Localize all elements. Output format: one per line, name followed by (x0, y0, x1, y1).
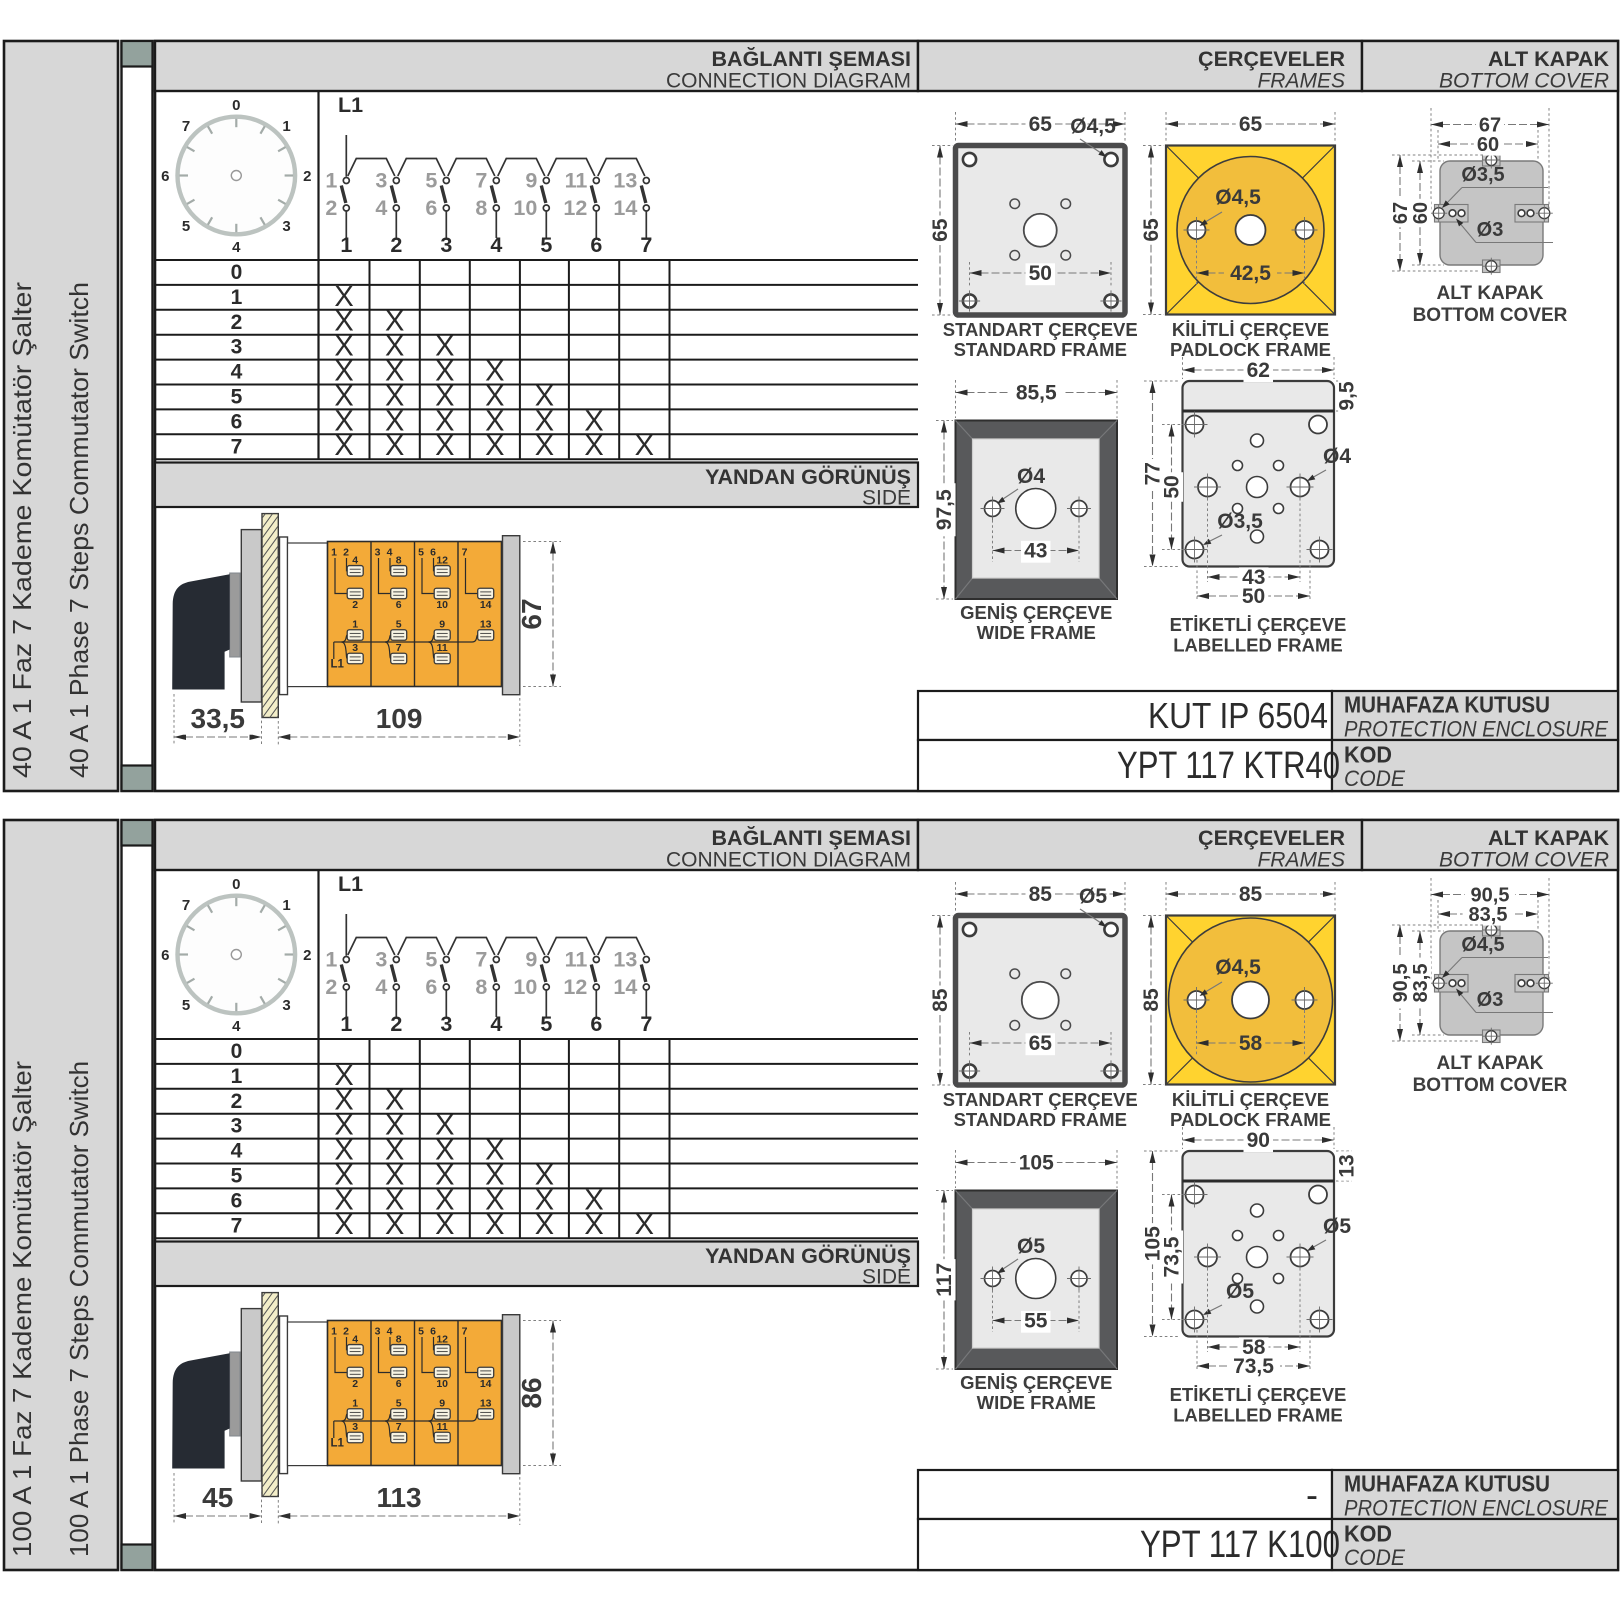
svg-text:9: 9 (525, 948, 537, 972)
svg-text:13: 13 (613, 169, 637, 193)
svg-text:2: 2 (352, 1378, 358, 1390)
svg-text:12: 12 (436, 1334, 448, 1346)
svg-text:STANDART ÇERÇEVE: STANDART ÇERÇEVE (943, 319, 1138, 340)
svg-text:1: 1 (352, 1398, 358, 1410)
svg-text:2: 2 (343, 1326, 349, 1338)
svg-text:50: 50 (1242, 585, 1265, 608)
svg-text:X: X (635, 1209, 654, 1241)
svg-text:KOD: KOD (1344, 742, 1392, 768)
svg-text:85: 85 (1140, 988, 1163, 1012)
svg-text:3: 3 (375, 948, 387, 972)
svg-text:SIDE: SIDE (862, 1266, 911, 1289)
svg-text:BAĞLANTI ŞEMASI: BAĞLANTI ŞEMASI (712, 46, 911, 71)
svg-text:4: 4 (232, 1018, 241, 1035)
svg-text:9: 9 (439, 1398, 445, 1410)
svg-text:ÇERÇEVELER: ÇERÇEVELER (1198, 47, 1345, 71)
svg-text:60: 60 (1410, 202, 1432, 224)
svg-text:X: X (334, 430, 353, 462)
svg-text:X: X (635, 430, 654, 462)
svg-text:6: 6 (425, 196, 437, 220)
svg-text:65: 65 (929, 218, 952, 242)
svg-text:9,5: 9,5 (1336, 381, 1359, 411)
svg-text:PROTECTION ENCLOSURE: PROTECTION ENCLOSURE (1344, 717, 1608, 742)
svg-text:ETİKETLİ ÇERÇEVE: ETİKETLİ ÇERÇEVE (1170, 614, 1347, 635)
svg-text:11: 11 (437, 1421, 448, 1433)
svg-text:7: 7 (231, 435, 243, 458)
svg-text:11: 11 (565, 169, 588, 193)
svg-text:X: X (485, 430, 504, 462)
svg-text:Ø5: Ø5 (1079, 885, 1107, 908)
svg-text:3: 3 (375, 547, 381, 559)
svg-text:0: 0 (232, 876, 240, 893)
svg-text:3: 3 (282, 218, 290, 235)
svg-text:YANDAN GÖRÜNÜŞ: YANDAN GÖRÜNÜŞ (705, 1243, 911, 1268)
svg-text:3: 3 (282, 997, 290, 1014)
svg-text:40 A 1 Faz 7 Kademe Komütatör: 40 A 1 Faz 7 Kademe Komütatör Şalter (7, 282, 37, 778)
svg-text:CODE: CODE (1344, 1545, 1405, 1570)
svg-text:PROTECTION ENCLOSURE: PROTECTION ENCLOSURE (1344, 1496, 1608, 1521)
svg-text:4: 4 (375, 196, 387, 220)
svg-text:8: 8 (396, 555, 402, 567)
svg-text:5: 5 (418, 1326, 424, 1338)
svg-text:6: 6 (396, 1378, 402, 1390)
svg-text:14: 14 (480, 1378, 492, 1390)
svg-text:2: 2 (303, 947, 311, 964)
svg-text:X: X (535, 1209, 554, 1241)
svg-text:65: 65 (1029, 113, 1053, 136)
svg-text:STANDART ÇERÇEVE: STANDART ÇERÇEVE (943, 1089, 1138, 1110)
svg-text:STANDARD FRAME: STANDARD FRAME (954, 339, 1127, 360)
svg-text:4: 4 (490, 233, 502, 257)
svg-text:58: 58 (1239, 1032, 1263, 1055)
svg-text:2: 2 (343, 547, 349, 559)
svg-text:6: 6 (590, 1012, 602, 1036)
svg-text:3: 3 (231, 336, 243, 359)
svg-text:Ø3: Ø3 (1477, 989, 1504, 1011)
svg-text:5: 5 (425, 948, 437, 972)
svg-text:8: 8 (475, 196, 487, 220)
svg-text:4: 4 (231, 1140, 243, 1163)
svg-text:7: 7 (396, 642, 402, 654)
svg-text:109: 109 (376, 703, 423, 734)
svg-text:14: 14 (613, 196, 637, 220)
svg-text:WIDE FRAME: WIDE FRAME (977, 1392, 1096, 1413)
svg-text:4: 4 (232, 239, 241, 256)
svg-text:67: 67 (516, 598, 547, 629)
svg-text:65: 65 (1029, 1032, 1053, 1055)
svg-text:Ø4,5: Ø4,5 (1070, 115, 1116, 138)
svg-text:X: X (584, 1209, 603, 1241)
svg-text:X: X (535, 430, 554, 462)
svg-text:85: 85 (1029, 883, 1053, 906)
svg-text:X: X (435, 1209, 454, 1241)
svg-text:4: 4 (387, 547, 393, 559)
svg-text:6: 6 (425, 975, 437, 999)
svg-text:SIDE: SIDE (862, 487, 911, 510)
svg-text:8: 8 (396, 1334, 402, 1346)
svg-text:60: 60 (1477, 134, 1499, 156)
svg-text:Ø3,5: Ø3,5 (1461, 164, 1504, 186)
svg-text:62: 62 (1247, 359, 1270, 382)
svg-text:4: 4 (231, 361, 243, 384)
svg-text:3: 3 (231, 1115, 243, 1138)
svg-text:PADLOCK FRAME: PADLOCK FRAME (1170, 339, 1331, 360)
svg-text:1: 1 (352, 619, 358, 631)
svg-text:7: 7 (182, 897, 190, 914)
svg-text:L1: L1 (338, 93, 363, 117)
svg-text:9: 9 (439, 619, 445, 631)
svg-text:YPT 117 K100: YPT 117 K100 (1140, 1524, 1340, 1566)
svg-text:5: 5 (396, 1398, 402, 1410)
svg-text:7: 7 (640, 1012, 652, 1036)
svg-text:YPT 117 KTR40: YPT 117 KTR40 (1117, 745, 1340, 787)
svg-text:13: 13 (480, 1398, 492, 1410)
svg-text:7: 7 (475, 169, 487, 193)
svg-text:8: 8 (475, 975, 487, 999)
svg-text:BOTTOM COVER: BOTTOM COVER (1439, 70, 1609, 93)
svg-text:1: 1 (340, 1012, 352, 1036)
svg-text:85: 85 (1239, 883, 1263, 906)
svg-text:45: 45 (202, 1482, 233, 1513)
svg-text:2: 2 (231, 1090, 243, 1113)
svg-text:14: 14 (480, 599, 492, 611)
svg-text:50: 50 (1161, 475, 1184, 498)
svg-text:11: 11 (565, 948, 588, 972)
svg-text:7: 7 (231, 1214, 243, 1237)
svg-text:83,5: 83,5 (1469, 904, 1508, 926)
svg-text:85: 85 (929, 988, 952, 1012)
svg-text:Ø5: Ø5 (1323, 1215, 1351, 1238)
svg-text:Ø5: Ø5 (1017, 1235, 1045, 1258)
svg-text:11: 11 (437, 642, 448, 654)
svg-text:L1: L1 (338, 872, 363, 896)
svg-text:85,5: 85,5 (1016, 382, 1057, 405)
svg-text:MUHAFAZA KUTUSU: MUHAFAZA KUTUSU (1344, 692, 1550, 718)
svg-text:40 A 1 Phase 7 Steps Commutato: 40 A 1 Phase 7 Steps Commutator Switch (64, 282, 94, 778)
svg-text:ALT KAPAK: ALT KAPAK (1437, 283, 1544, 304)
svg-text:1: 1 (231, 286, 243, 309)
svg-text:5: 5 (182, 997, 190, 1014)
svg-text:86: 86 (516, 1377, 547, 1408)
svg-text:ALT KAPAK: ALT KAPAK (1437, 1053, 1544, 1074)
svg-text:PADLOCK FRAME: PADLOCK FRAME (1170, 1109, 1331, 1130)
svg-text:KUT IP 6504: KUT IP 6504 (1148, 695, 1328, 736)
svg-text:3: 3 (375, 169, 387, 193)
svg-text:5: 5 (540, 1012, 552, 1036)
svg-text:5: 5 (540, 233, 552, 257)
svg-text:-: - (1306, 1474, 1318, 1515)
svg-text:6: 6 (231, 410, 243, 433)
svg-text:1: 1 (231, 1065, 243, 1088)
svg-text:GENİŞ ÇERÇEVE: GENİŞ ÇERÇEVE (960, 1372, 1112, 1393)
svg-text:6: 6 (161, 168, 169, 185)
svg-text:7: 7 (396, 1421, 402, 1433)
svg-text:Ø3: Ø3 (1477, 219, 1504, 241)
svg-text:X: X (385, 430, 404, 462)
svg-text:65: 65 (1140, 218, 1163, 242)
svg-text:KİLİTLİ ÇERÇEVE: KİLİTLİ ÇERÇEVE (1172, 1089, 1329, 1110)
svg-text:MUHAFAZA KUTUSU: MUHAFAZA KUTUSU (1344, 1471, 1550, 1497)
svg-text:6: 6 (161, 947, 169, 964)
svg-text:12: 12 (563, 196, 587, 220)
svg-text:83,5: 83,5 (1410, 964, 1432, 1003)
svg-text:5: 5 (231, 1165, 243, 1188)
svg-text:2: 2 (325, 975, 337, 999)
svg-text:0: 0 (231, 1040, 243, 1063)
svg-text:73,5: 73,5 (1161, 1236, 1184, 1277)
svg-text:X: X (334, 1209, 353, 1241)
svg-text:5: 5 (182, 218, 190, 235)
svg-text:67: 67 (1390, 202, 1412, 224)
svg-text:13: 13 (613, 948, 637, 972)
svg-text:7: 7 (462, 547, 468, 559)
svg-text:FRAMES: FRAMES (1257, 70, 1345, 93)
svg-text:BOTTOM COVER: BOTTOM COVER (1439, 849, 1609, 872)
svg-text:3: 3 (352, 1421, 358, 1433)
svg-text:117: 117 (933, 1263, 956, 1297)
svg-text:2: 2 (390, 1012, 402, 1036)
svg-text:42,5: 42,5 (1230, 262, 1271, 285)
svg-text:L1: L1 (331, 659, 345, 671)
svg-text:65: 65 (1239, 113, 1263, 136)
svg-text:KOD: KOD (1344, 1521, 1392, 1547)
svg-text:CODE: CODE (1344, 766, 1405, 791)
svg-text:33,5: 33,5 (191, 703, 246, 734)
svg-text:1: 1 (325, 169, 337, 193)
svg-text:90: 90 (1247, 1129, 1270, 1152)
svg-text:1: 1 (325, 948, 337, 972)
svg-text:Ø4: Ø4 (1323, 445, 1351, 468)
svg-text:10: 10 (436, 599, 448, 611)
svg-text:97,5: 97,5 (933, 489, 956, 530)
svg-text:CONNECTION DIAGRAM: CONNECTION DIAGRAM (666, 849, 911, 872)
svg-text:Ø4,5: Ø4,5 (1461, 934, 1504, 956)
svg-text:100 A 1 Faz 7 Kademe Komütatör: 100 A 1 Faz 7 Kademe Komütatör Şalter (7, 1061, 37, 1557)
svg-text:12: 12 (436, 555, 448, 567)
svg-text:12: 12 (563, 975, 587, 999)
svg-text:ETİKETLİ ÇERÇEVE: ETİKETLİ ÇERÇEVE (1170, 1384, 1347, 1405)
svg-text:ALT KAPAK: ALT KAPAK (1488, 826, 1609, 850)
svg-text:0: 0 (232, 97, 240, 114)
svg-text:113: 113 (376, 1482, 421, 1513)
svg-text:5: 5 (418, 547, 424, 559)
svg-text:2: 2 (303, 168, 311, 185)
svg-text:5: 5 (425, 169, 437, 193)
svg-text:4: 4 (490, 1012, 502, 1036)
svg-text:LABELLED FRAME: LABELLED FRAME (1173, 1405, 1343, 1426)
svg-text:LABELLED FRAME: LABELLED FRAME (1173, 635, 1343, 656)
svg-text:10: 10 (513, 196, 537, 220)
svg-text:6: 6 (231, 1189, 243, 1212)
svg-text:7: 7 (475, 948, 487, 972)
svg-text:73,5: 73,5 (1233, 1355, 1274, 1378)
svg-text:2: 2 (231, 311, 243, 334)
svg-text:14: 14 (613, 975, 637, 999)
svg-text:4: 4 (352, 1334, 358, 1346)
svg-text:Ø4: Ø4 (1017, 465, 1045, 488)
svg-text:BAĞLANTI ŞEMASI: BAĞLANTI ŞEMASI (712, 825, 911, 850)
svg-text:BOTTOM COVER: BOTTOM COVER (1413, 305, 1568, 326)
svg-text:5: 5 (396, 619, 402, 631)
svg-text:1: 1 (331, 1326, 337, 1338)
svg-text:WIDE FRAME: WIDE FRAME (977, 622, 1096, 643)
svg-text:55: 55 (1024, 1310, 1048, 1333)
svg-text:3: 3 (440, 1012, 452, 1036)
svg-text:13: 13 (480, 619, 492, 631)
svg-text:3: 3 (440, 233, 452, 257)
svg-text:4: 4 (387, 1326, 393, 1338)
svg-text:50: 50 (1029, 262, 1052, 285)
svg-text:6: 6 (430, 1326, 436, 1338)
svg-text:6: 6 (430, 547, 436, 559)
svg-text:X: X (385, 1209, 404, 1241)
svg-text:3: 3 (375, 1326, 381, 1338)
svg-text:FRAMES: FRAMES (1257, 849, 1345, 872)
svg-text:Ø5: Ø5 (1226, 1280, 1254, 1303)
svg-text:2: 2 (352, 599, 358, 611)
svg-text:105: 105 (1019, 1152, 1054, 1175)
svg-text:10: 10 (513, 975, 537, 999)
svg-text:6: 6 (590, 233, 602, 257)
svg-text:STANDARD FRAME: STANDARD FRAME (954, 1109, 1127, 1130)
svg-text:ÇERÇEVELER: ÇERÇEVELER (1198, 826, 1345, 850)
svg-text:13: 13 (1336, 1154, 1359, 1177)
svg-text:2: 2 (325, 196, 337, 220)
svg-text:1: 1 (282, 897, 290, 914)
svg-text:0: 0 (231, 261, 243, 284)
svg-text:7: 7 (182, 118, 190, 135)
svg-text:L1: L1 (331, 1438, 345, 1450)
svg-text:10: 10 (436, 1378, 448, 1390)
svg-text:CONNECTION DIAGRAM: CONNECTION DIAGRAM (666, 70, 911, 93)
svg-text:ALT KAPAK: ALT KAPAK (1488, 47, 1609, 71)
svg-text:X: X (584, 430, 603, 462)
svg-text:1: 1 (340, 233, 352, 257)
svg-text:43: 43 (1024, 540, 1047, 563)
svg-text:4: 4 (352, 555, 358, 567)
svg-text:YANDAN GÖRÜNÜŞ: YANDAN GÖRÜNÜŞ (705, 464, 911, 489)
svg-text:2: 2 (390, 233, 402, 257)
svg-text:BOTTOM COVER: BOTTOM COVER (1413, 1075, 1568, 1096)
svg-text:100 A 1 Phase 7 Steps Commutat: 100 A 1 Phase 7 Steps Commutator Switch (64, 1061, 94, 1557)
svg-text:Ø3,5: Ø3,5 (1217, 510, 1263, 533)
svg-text:90,5: 90,5 (1390, 964, 1412, 1003)
svg-text:1: 1 (331, 547, 337, 559)
svg-text:4: 4 (375, 975, 387, 999)
svg-text:1: 1 (282, 118, 290, 135)
svg-text:X: X (435, 430, 454, 462)
svg-text:9: 9 (525, 169, 537, 193)
svg-text:7: 7 (462, 1326, 468, 1338)
svg-text:5: 5 (231, 386, 243, 409)
svg-text:X: X (485, 1209, 504, 1241)
svg-text:KİLİTLİ ÇERÇEVE: KİLİTLİ ÇERÇEVE (1172, 319, 1329, 340)
svg-text:3: 3 (352, 642, 358, 654)
svg-text:6: 6 (396, 599, 402, 611)
svg-text:GENİŞ ÇERÇEVE: GENİŞ ÇERÇEVE (960, 602, 1112, 623)
svg-text:7: 7 (640, 233, 652, 257)
